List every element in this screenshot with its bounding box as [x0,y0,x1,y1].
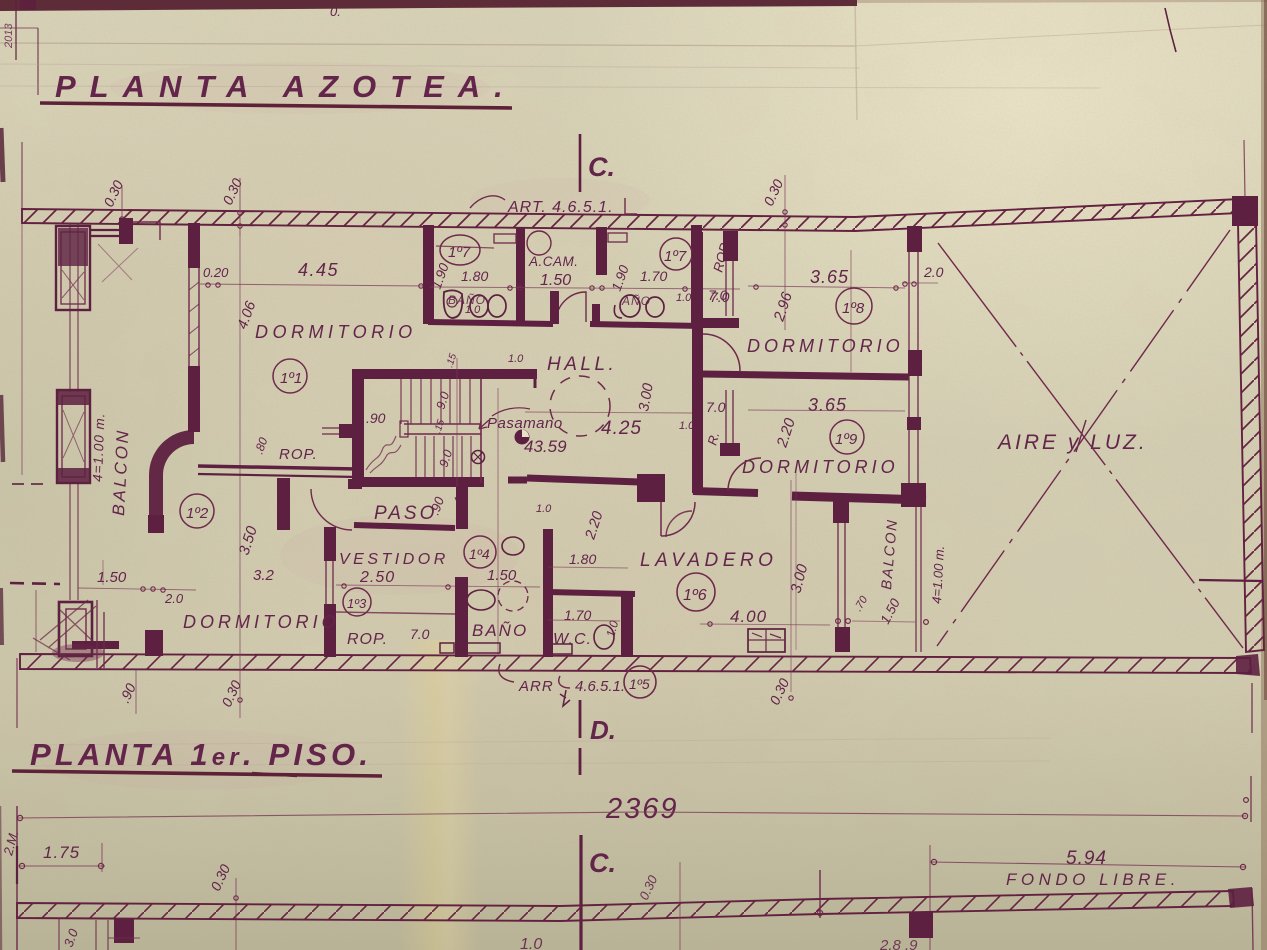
svg-text:4.6.5.1.: 4.6.5.1. [575,678,625,695]
svg-text:1º6: 1º6 [683,587,707,604]
svg-text:1º7: 1º7 [664,248,687,265]
svg-text:DORMITORIO: DORMITORIO [255,322,417,342]
svg-text:3.65: 3.65 [808,395,847,415]
svg-text:4=1.00 m.: 4=1.00 m. [929,545,947,604]
svg-text:DORMITORIO: DORMITORIO [747,336,904,356]
svg-text:5.94: 5.94 [1066,848,1107,869]
svg-text:D.: D. [590,715,616,745]
svg-text:1.0: 1.0 [676,292,692,304]
svg-text:1º1: 1º1 [280,370,302,387]
svg-text:3.2: 3.2 [253,567,275,584]
svg-text:1.0: 1.0 [536,503,552,515]
svg-text:0.20: 0.20 [203,265,229,280]
svg-text:1º2: 1º2 [186,505,209,522]
svg-text:0.: 0. [330,4,341,19]
svg-text:1.50: 1.50 [540,272,571,289]
svg-text:FONDO LIBRE.: FONDO LIBRE. [1006,870,1180,889]
svg-text:BAÑO: BAÑO [472,621,528,640]
svg-text:ARR: ARR [518,678,554,695]
svg-text:ROP.: ROP. [347,631,388,648]
svg-text:Pasamano: Pasamano [487,415,563,432]
svg-text:4.00: 4.00 [730,607,767,626]
svg-text:2.0: 2.0 [164,591,184,606]
svg-text:1.80: 1.80 [461,268,488,284]
svg-text:A.CAM.: A.CAM. [528,254,579,269]
svg-text:C.: C. [588,152,615,182]
svg-text:DORMITORIO: DORMITORIO [183,612,340,632]
svg-text:LAVADERO: LAVADERO [640,550,777,571]
svg-text:AIRE y LUZ.: AIRE y LUZ. [996,431,1148,454]
svg-text:7.0: 7.0 [708,287,728,303]
svg-text:C.: C. [589,848,616,878]
svg-text:1.0: 1.0 [520,936,542,950]
svg-text:1.50: 1.50 [97,569,127,586]
svg-text:1º5: 1º5 [629,676,650,692]
svg-text:4.45: 4.45 [298,260,339,280]
svg-text:1.80: 1.80 [569,551,596,567]
svg-text:PLANTA AZOTEA.: PLANTA AZOTEA. [55,69,517,104]
svg-text:ROP.: ROP. [279,446,318,463]
svg-text:2013: 2013 [3,23,15,49]
svg-text:BAÑO: BAÑO [448,293,486,307]
svg-text:43.59: 43.59 [524,437,567,456]
svg-text:1.70: 1.70 [640,268,667,284]
svg-text:.90: .90 [366,410,386,426]
svg-text:4=1.00 m.: 4=1.00 m. [90,412,107,482]
svg-text:1.50: 1.50 [487,567,517,584]
svg-text:2.50: 2.50 [359,569,395,586]
svg-text:2.0: 2.0 [923,264,944,280]
svg-text:1º8: 1º8 [842,300,865,317]
svg-text:VESTIDOR: VESTIDOR [339,551,449,568]
svg-text:2.8 .9: 2.8 .9 [879,937,918,950]
svg-text:1.0: 1.0 [508,353,524,365]
svg-text:AÑO: AÑO [621,294,651,308]
svg-text:ART. 4.6.5.1.: ART. 4.6.5.1. [507,199,614,216]
svg-text:7.0: 7.0 [706,399,726,415]
svg-text:DORMITORIO: DORMITORIO [742,457,899,477]
svg-text:7.0: 7.0 [410,626,430,642]
svg-text:1º3: 1º3 [347,596,367,611]
svg-text:PLANTA 1er. PISO.: PLANTA 1er. PISO. [30,737,372,772]
svg-text:HALL.: HALL. [547,354,617,375]
svg-text:1º4: 1º4 [469,546,490,562]
svg-text:4.25: 4.25 [601,418,642,439]
svg-text:1.75: 1.75 [43,843,80,862]
svg-text:1º9: 1º9 [835,431,858,448]
svg-text:2369: 2369 [605,793,679,825]
svg-text:3.65: 3.65 [810,267,849,287]
